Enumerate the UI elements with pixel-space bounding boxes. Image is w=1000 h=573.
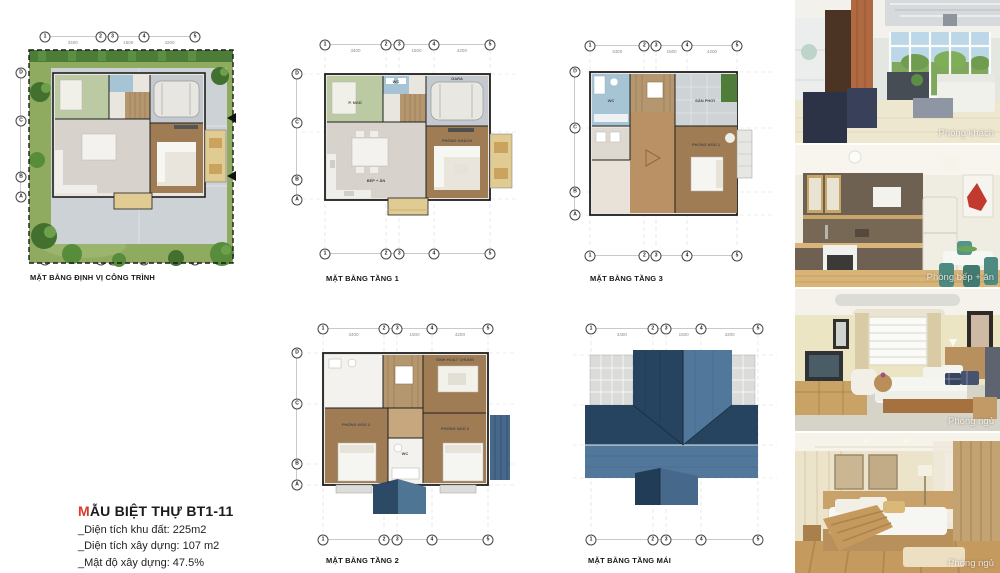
bowl-greens-icon (957, 246, 977, 252)
detail-land-area: _Diện tích khu đất: 225m2 (78, 524, 233, 536)
floor3-plan: 12345340015004200 12345 DCBA (568, 30, 783, 270)
armchair-dark (803, 92, 847, 143)
dining-table-icon (352, 138, 388, 166)
site-house (53, 73, 226, 209)
room-label: WC (393, 79, 400, 84)
photo-label: Phòng ngủ (948, 416, 994, 427)
tv-icon (448, 128, 474, 132)
site-plan-drawing (24, 30, 248, 274)
room-label: PHÒNG NGỦ 1 (692, 142, 721, 147)
plant-icon (911, 74, 923, 86)
room-area (592, 160, 630, 213)
plaid-pillow (961, 371, 979, 385)
artwork-frame (869, 455, 897, 489)
detail-built-area: _Diện tích xây dựng: 107 m2 (78, 540, 233, 552)
microwave-icon (873, 187, 901, 207)
kitchen-rendering (795, 145, 1000, 287)
ceiling (795, 145, 1000, 175)
room-label: PHÒNG NGỦ 3 (441, 426, 470, 431)
floor2-caption: MẶT BẰNG TẦNG 2 (326, 556, 399, 565)
floor2-plan: 12345340015004200 12345 DCBA (288, 318, 523, 550)
porch-area (388, 198, 428, 215)
nightstand (803, 525, 821, 541)
armchair (851, 369, 877, 395)
armchair-dark (847, 88, 877, 128)
bed-icon (332, 82, 356, 114)
room-label: SINH HOẠT CHUNG (436, 357, 474, 362)
photo-bedroom-2: Phòng ngủ (795, 433, 1000, 573)
pendant-lamp-icon (943, 14, 957, 26)
floor3-drawing: SÂN PHƠI PHÒNG NGỦ 1 WC (568, 30, 783, 270)
room-label: GARA (451, 76, 463, 81)
artwork-frame (835, 455, 863, 489)
wall-decor-icon (801, 44, 817, 60)
shelf (803, 215, 933, 219)
bedroom2-rendering (795, 433, 1000, 573)
window (869, 317, 927, 365)
detail-density: _Mật độ xây dựng: 47.5% (78, 557, 233, 569)
room-label: SÂN PHƠI (695, 98, 715, 103)
accent-pillow (883, 501, 905, 513)
sheet-title: MẪU BIỆT THỰ BT1-11 (78, 503, 233, 519)
room-label: PHÒNG NGỦ 2 (342, 422, 371, 427)
bed-base (883, 399, 973, 413)
car-icon (431, 82, 483, 120)
photo-bedroom-1: Phòng ngủ (795, 289, 1000, 431)
roof-caption: MẶT BẰNG TẦNG MÁI (588, 556, 671, 565)
floor-lamp-icon (918, 465, 932, 476)
grid-rows-left: DCBA (20, 73, 21, 197)
roof-patch-bottom (373, 479, 398, 514)
floor1-plan: 12345340015004200 12345 DCBA (288, 30, 523, 270)
photo-label: Phòng khách (939, 128, 994, 139)
ottoman (913, 98, 953, 118)
room-label: P. NGỦ (348, 100, 361, 105)
floor3-caption: MẶT BẰNG TẦNG 3 (590, 274, 663, 283)
sofa-icon (434, 146, 480, 157)
presentation-sheet: 12345340015004200 12345 DCBA (0, 0, 1000, 573)
site-plan: 12345340015004200 12345 DCBA (24, 30, 248, 274)
living-room-rendering (795, 0, 1000, 143)
media-unit (887, 72, 929, 102)
title-block: MẪU BIỆT THỰ BT1-11 _Diện tích khu đất: … (78, 503, 233, 569)
curtain (953, 441, 1000, 553)
floor1-caption: MẶT BẰNG TẦNG 1 (326, 274, 399, 283)
room-label: PHÒNG KHÁCH (442, 138, 472, 143)
car-icon (154, 81, 199, 117)
floor1-drawing: P. NGỦ WC GARA BẾP + ĂN PHÒNG KHÁCH (288, 30, 523, 270)
planter-area (721, 74, 737, 102)
title-rest: ẪU BIỆT THỰ BT1-11 (90, 503, 234, 519)
site-plan-caption: MẶT BẰNG ĐỊNH VỊ CÔNG TRÌNH (30, 273, 155, 282)
floor2-drawing: SINH HOẠT CHUNG PHÒNG NGỦ 2 PHÒNG NGỦ 3 … (288, 318, 523, 550)
room-label: WC (608, 98, 615, 103)
roof-drawing (565, 318, 785, 550)
photo-label: Phòng ngủ (948, 558, 994, 569)
ceiling-light-icon (849, 151, 861, 163)
room-label: BẾP + ĂN (367, 178, 386, 183)
roof-plan: 12345340015004200 12345 (565, 318, 785, 550)
bedroom-rendering (795, 289, 1000, 431)
room-label: WC (402, 451, 409, 456)
title-accent-letter: M (78, 503, 90, 519)
photo-kitchen: Phòng bếp + ăn (795, 145, 1000, 287)
photo-living-room: Phòng khách (795, 0, 1000, 143)
countertop (795, 243, 935, 248)
hedge-row (29, 50, 233, 62)
photo-label: Phòng bếp + ăn (927, 272, 994, 283)
stair-area (400, 94, 426, 122)
hall-area (388, 408, 423, 438)
pillow (923, 367, 943, 379)
